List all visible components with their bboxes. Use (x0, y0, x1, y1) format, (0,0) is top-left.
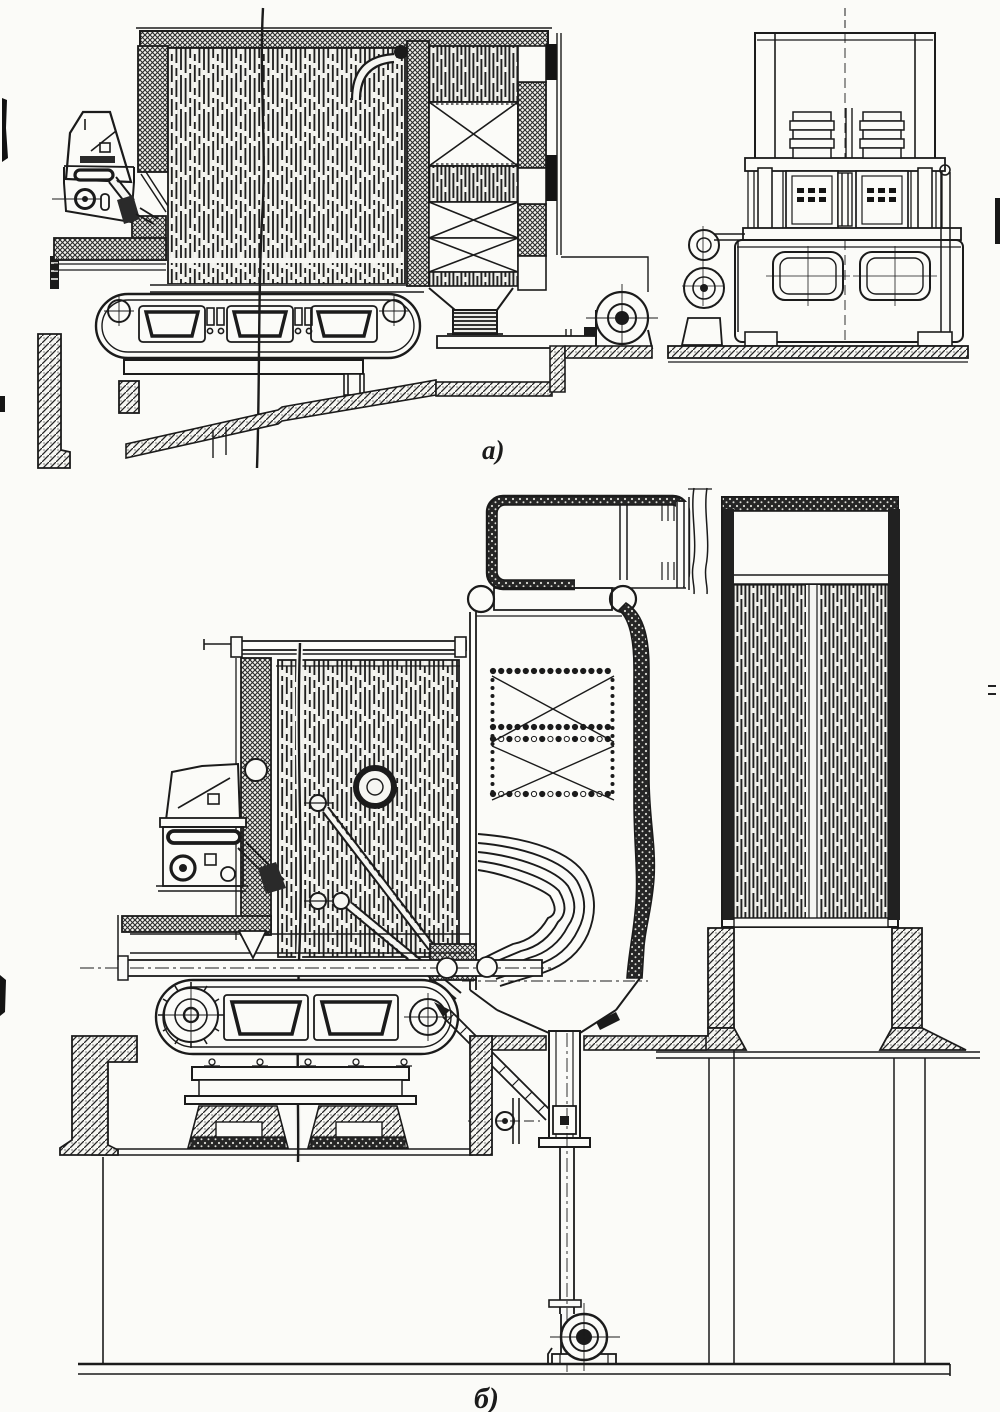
svg-text:б): б) (474, 1382, 499, 1412)
svg-text:а): а) (482, 435, 505, 465)
